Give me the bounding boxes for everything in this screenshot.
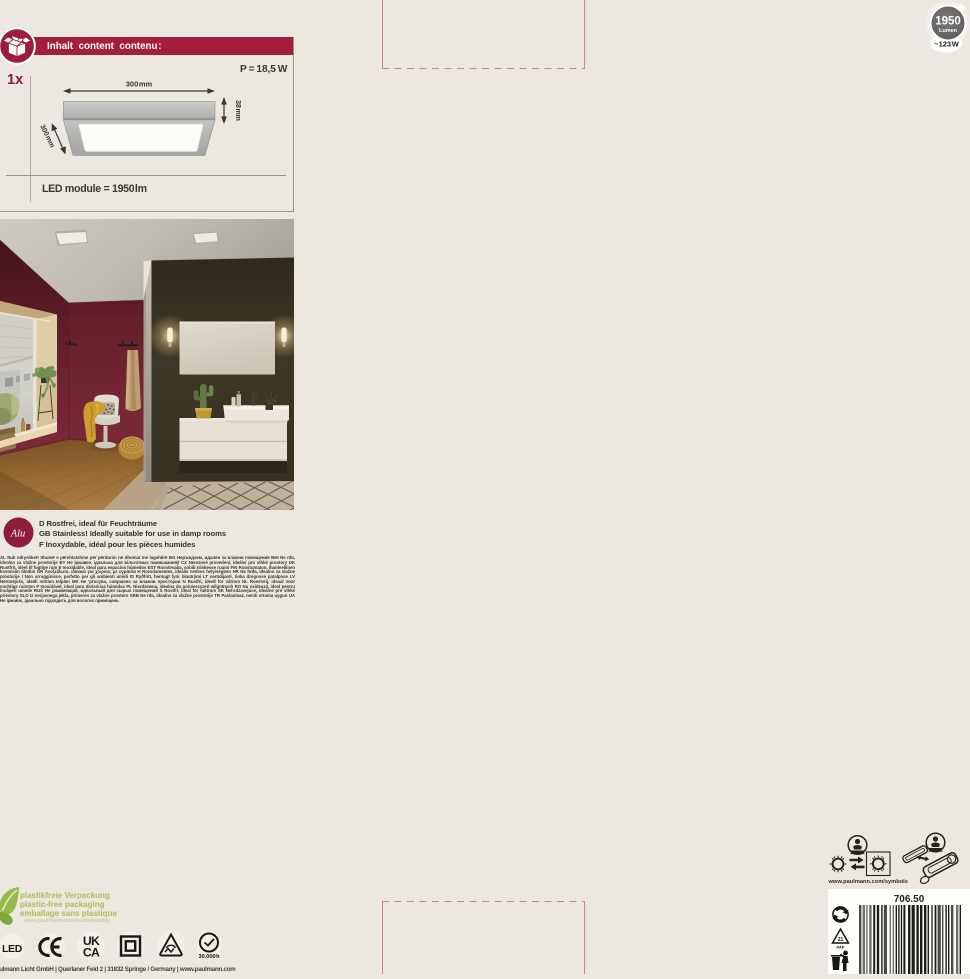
svg-text:Lumen: Lumen [939,28,958,34]
svg-text:www.paulmann.com/symbols: www.paulmann.com/symbols [828,879,908,885]
svg-text:30.000 h: 30.000 h [199,954,221,960]
svg-text:21: 21 [838,937,844,943]
svg-text:PAP: PAP [837,945,845,950]
svg-text:300 mm: 300 mm [126,80,153,89]
svg-text:CA: CA [83,946,100,960]
svg-text:38 mm: 38 mm [234,100,241,121]
svg-text:Alu: Alu [10,529,26,540]
svg-text:1950: 1950 [935,16,961,28]
svg-text:~123 W: ~123 W [934,40,960,49]
svg-text:LED: LED [2,943,23,955]
